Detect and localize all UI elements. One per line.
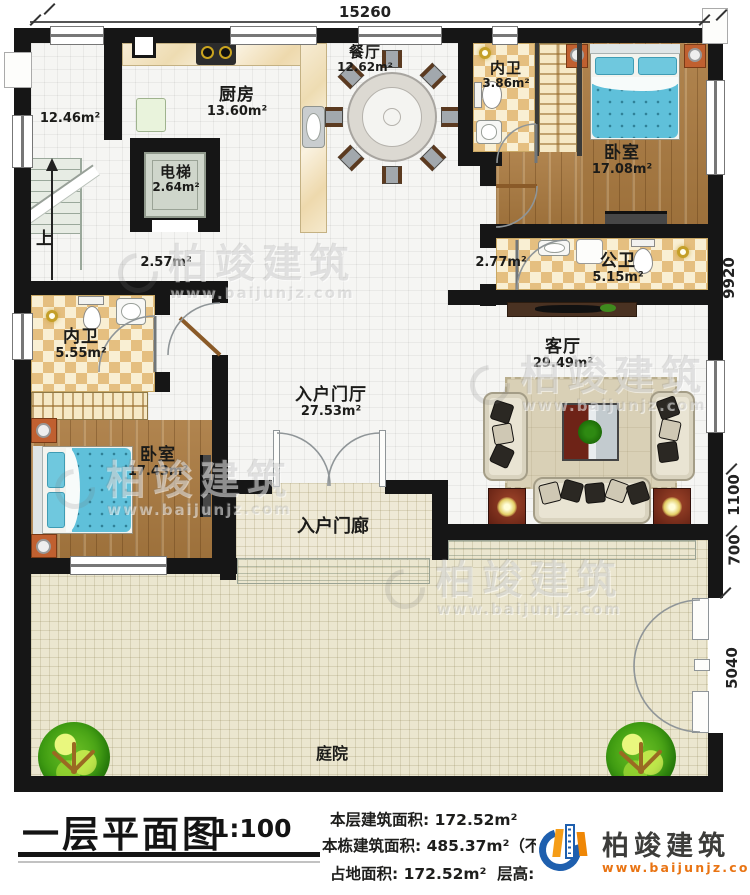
dimension-top: 15260 [334,3,396,21]
room-label-elevator: 电梯2.64m² [136,164,216,194]
room-area: 5.55m² [55,347,106,362]
room-label-stair-hall: 12.46m² [30,112,110,127]
room-name: 内卫 [490,60,522,77]
room-label-bedroom-right: 卧室17.08m² [572,144,672,178]
room-area: 5.15m² [592,271,643,286]
room-name: 内卫 [63,328,99,347]
room-area: 17.08m² [592,163,652,178]
title-underline-thin [18,861,320,863]
logo-bar-icon [577,832,588,856]
dimension-right-1: 9920 [720,257,738,299]
brand-logo-icon [538,820,596,878]
room-label-living: 客厅29.49m² [513,338,613,372]
room-label-bedroom-left: 卧室17.43m² [108,446,208,480]
logo-bar-icon [565,824,575,859]
room-name: 客厅 [545,338,581,357]
room-name: 公卫 [600,252,636,271]
room-label-kitchen: 厨房13.60m² [197,86,277,120]
room-name: 餐厅 [349,44,381,61]
room-area: 13.60m² [207,105,267,120]
room-label-foyer: 入户门厅27.53m² [281,386,381,420]
area-label-corridor-b: 2.77m² [466,255,536,270]
area-label-corridor-a: 2.57m² [131,255,201,270]
room-label-courtyard: 庭院 [292,740,372,764]
floor-plan: 上 [0,0,750,895]
dimension-right-3: 700 [726,534,744,565]
room-name: 卧室 [140,446,176,465]
plan-title: 一层平面图 [22,804,222,858]
room-label-ensuite-top: 内卫3.86m² [468,60,544,90]
brand-name: 柏竣建筑 [602,824,730,863]
title-underline [18,852,320,857]
room-label-porch: 入户门廊 [263,512,403,538]
room-label-dining: 餐厅12.62m² [322,44,408,74]
room-name: 卧室 [604,144,640,163]
plan-scale: 1:100 [212,814,292,843]
brand-logo: 柏竣建筑 www.baijunjz.com [536,818,750,890]
room-area: 2.64m² [152,181,199,194]
info-row-1: 本层建筑面积: 172.52m² [330,808,517,830]
stairs-up-label: 上 [36,224,53,249]
room-area: 12.62m² [337,61,393,74]
room-name: 入户门厅 [295,386,367,405]
room-area: 29.49m² [533,357,593,372]
room-name: 厨房 [219,86,255,105]
dimension-line [30,21,710,23]
room-area: 27.53m² [301,405,361,420]
dimension-right-4: 5040 [723,647,741,689]
room-area: 12.46m² [40,112,100,127]
room-area: 17.43m² [128,465,188,480]
room-label-ensuite-left: 内卫5.55m² [41,328,121,362]
dimension-right-2: 1100 [725,474,743,516]
brand-url: www.baijunjz.com [602,860,750,875]
room-label-public-bath: 公卫5.15m² [578,252,658,286]
room-name: 电梯 [160,164,192,181]
room-area: 3.86m² [482,77,529,90]
